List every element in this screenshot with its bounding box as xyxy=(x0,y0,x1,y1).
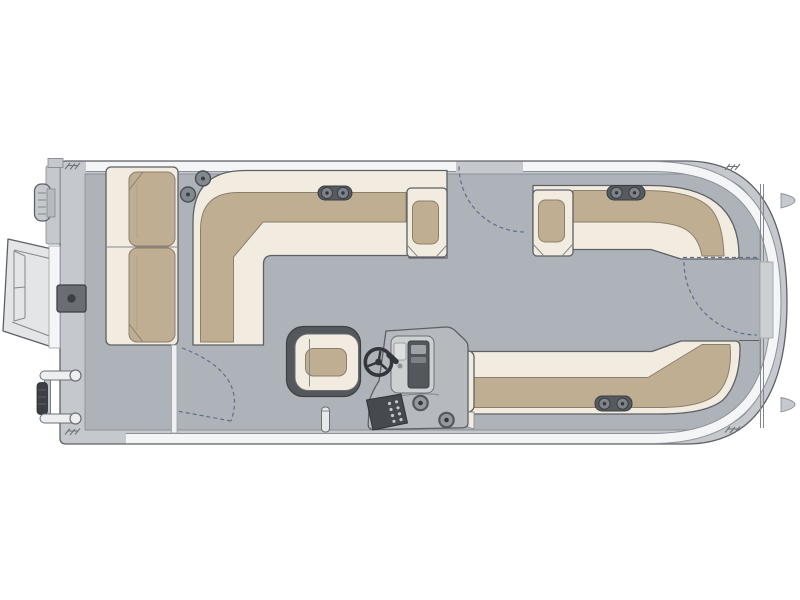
gate-latch-pad xyxy=(57,285,86,312)
boarding-ramp xyxy=(3,239,52,347)
aft-lounge-armrest xyxy=(407,188,447,257)
captains-chair xyxy=(287,327,361,397)
bow-port-armrest xyxy=(533,190,573,256)
open-gate-door xyxy=(172,345,178,433)
switch-panel xyxy=(367,394,408,430)
speaker-bar-port xyxy=(318,186,352,200)
mooring-line-coil xyxy=(37,383,48,415)
floorplan-canvas xyxy=(0,0,800,600)
pontoon-floorplan xyxy=(0,0,800,600)
bow-gate-door xyxy=(760,262,773,338)
throttle-plate xyxy=(394,343,406,360)
screen-readout xyxy=(411,345,426,354)
bow-fin-lower xyxy=(781,398,795,413)
console-knob xyxy=(398,364,403,369)
bow-fin-upper xyxy=(781,194,795,209)
outboard-motor xyxy=(35,184,56,221)
corner-bracket xyxy=(48,159,63,168)
speaker-bar-bow-port xyxy=(607,186,645,201)
stern-chaise xyxy=(106,167,178,345)
speaker-bar-bow-stbd xyxy=(595,396,632,411)
pedestal-mount xyxy=(322,407,330,432)
screen-readout xyxy=(411,357,426,363)
